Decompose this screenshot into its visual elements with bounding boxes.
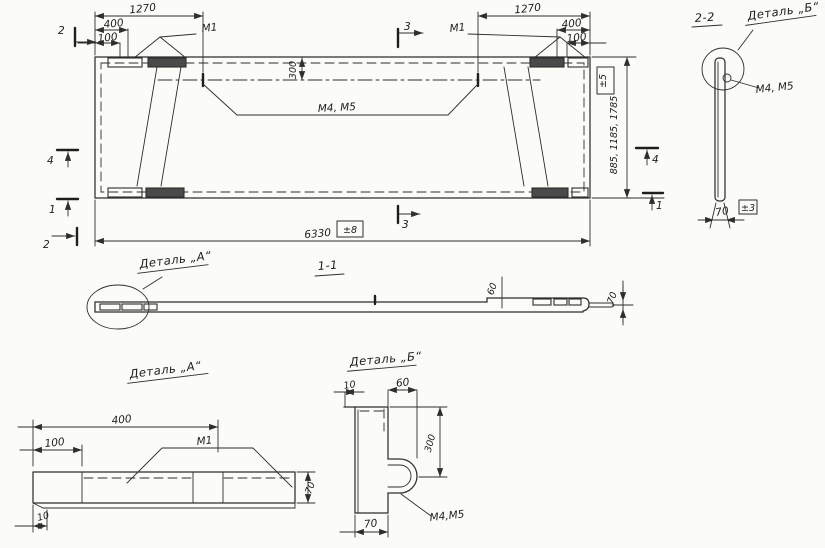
plan-dim-1270-left: 1270 (129, 2, 157, 17)
section-1-1-dim-60: 60 (485, 282, 499, 297)
detail-b-dim-10: 10 (343, 379, 357, 392)
section-2-2: 2-2 Деталь „Б“ М4, М5 70 ±3 (692, 0, 820, 228)
plan-dim-length (95, 200, 590, 246)
detail-a-dim-10: 10 (36, 510, 51, 524)
detail-a-title: Деталь „А“ (128, 358, 203, 381)
plan-section-markers (52, 28, 663, 245)
plan-marker-4-left: 4 (47, 155, 54, 167)
plan-marker-1-right: 1 (656, 200, 663, 212)
plan-marker-1-left: 1 (49, 204, 56, 216)
detail-a-dim-100: 100 (44, 436, 66, 450)
section-1-1: Деталь „А“ 1-1 (87, 248, 633, 329)
section-2-2-weld-label: М4, М5 (755, 80, 795, 96)
section-2-2-tol-3: ±3 (741, 203, 755, 214)
plan-view: М4, М5 300 1270 400 100 М1 (43, 2, 664, 251)
plan-outline (95, 57, 590, 198)
detail-b-dim-300: 300 (423, 433, 438, 453)
plan-tol-length-label: ±8 (343, 225, 357, 236)
plan-dim-1270-right: 1270 (514, 2, 542, 17)
detail-b-body (344, 407, 417, 513)
detail-a-dim-70: 70 (303, 481, 317, 496)
detail-a-view: Деталь „А“ М1 (15, 358, 318, 532)
detail-a-plate (33, 448, 295, 508)
section-2-2-detail-label: Деталь „Б“ (745, 0, 820, 23)
section-2-2-dim-70: 70 (714, 205, 730, 219)
technical-drawing: М4, М5 300 1270 400 100 М1 (0, 0, 825, 548)
plan-corner-slots (108, 58, 588, 197)
plan-dim-heights-label: 885, 1185, 1785 (609, 96, 620, 175)
plan-dim-400-left: 400 (103, 17, 125, 31)
plan-dim-100-left: 100 (97, 31, 119, 45)
section-1-1-title: 1-1 (317, 258, 338, 273)
plan-dim-400-right: 400 (561, 17, 583, 31)
plan-weld-m1-right: М1 (449, 21, 466, 35)
plan-marker-4-right: 4 (652, 154, 659, 166)
detail-a-weld-m1: М1 (196, 434, 213, 448)
section-1-1-dim-70: 70 (605, 291, 619, 306)
plan-dim-300-label: 300 (288, 61, 299, 79)
plan-marker-3-top: 3 (404, 21, 411, 33)
section-2-2-title: 2-2 (694, 10, 715, 25)
detail-b-dim-70: 70 (363, 517, 378, 530)
plan-marker-2-top: 2 (58, 25, 65, 37)
plan-marker-3-bottom: 3 (402, 219, 409, 231)
detail-a-dim-400: 400 (111, 413, 133, 427)
section-1-1-detail-label: Деталь „А“ (138, 248, 213, 271)
plan-dim-100-right: 100 (566, 31, 588, 45)
section-1-1-bar (87, 285, 614, 329)
plan-weld-m1-left: М1 (201, 21, 218, 35)
plan-tol-heights-label: ±5 (598, 74, 609, 88)
plan-marker-2-bottom: 2 (43, 239, 50, 251)
plan-dim-length-label: 6330 (304, 227, 332, 241)
detail-b-view: Деталь „Б“ (334, 349, 465, 537)
detail-b-weld-label: М4,М5 (429, 508, 465, 524)
detail-b-dim-60: 60 (395, 376, 410, 389)
section-2-2-bar (702, 48, 744, 201)
drawing-sheet: М4, М5 300 1270 400 100 М1 (0, 0, 825, 548)
plan-weld-m4-m5-label: М4, М5 (318, 101, 357, 115)
